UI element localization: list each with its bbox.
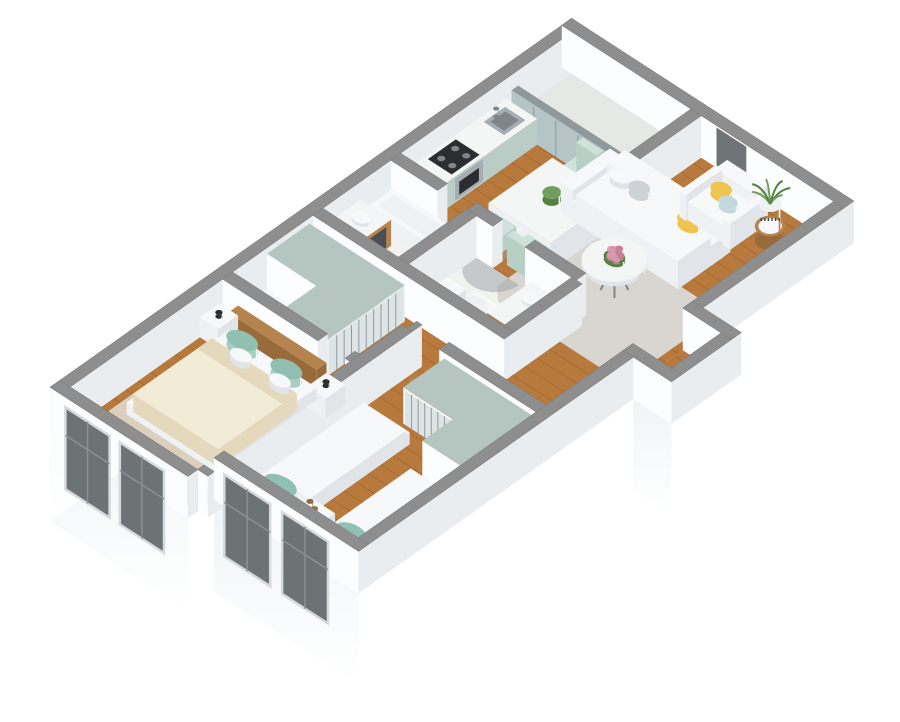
- wall-bath-top-b-face-u: [493, 219, 503, 268]
- wall-outer-bottom-bedroom2-face-u: [359, 544, 369, 593]
- floor-plan-3d-render: [0, 0, 900, 722]
- armchair-armrest-right-face-v: [724, 219, 731, 249]
- floor-plan-scene: [0, 0, 900, 722]
- wall-entry-alcove-top-face-u: [731, 333, 741, 382]
- wall-entry-alcove-bottom-face-u: [672, 375, 682, 424]
- armchair-armrest-left-face-v: [679, 191, 686, 221]
- wall-outer-top-face-u: [844, 201, 854, 250]
- wall-outer-bottom-master-face-u: [188, 470, 198, 519]
- wall-bath-bottom-face-u: [504, 332, 514, 381]
- wall-bedroom2-top-a-face-u: [412, 325, 422, 374]
- wall-bedrooms-divider-face-v: [198, 470, 208, 519]
